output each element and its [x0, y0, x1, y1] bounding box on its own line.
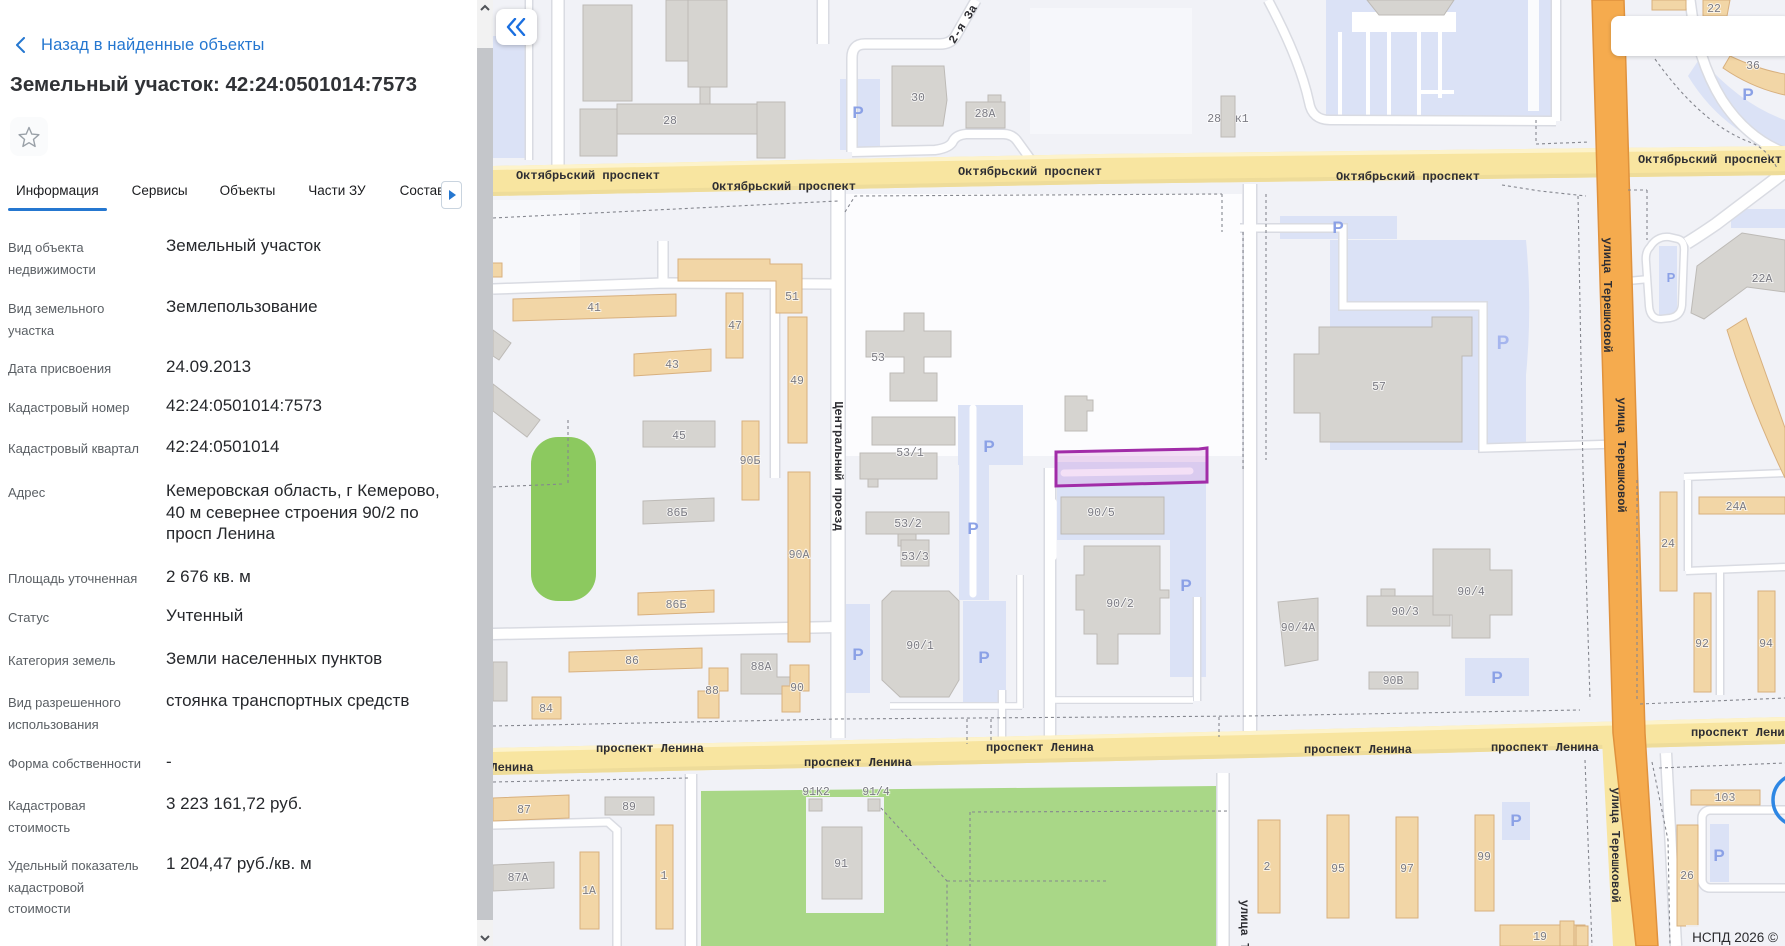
- svg-text:97: 97: [1400, 863, 1414, 876]
- svg-text:1: 1: [661, 870, 668, 883]
- svg-text:P: P: [1510, 811, 1521, 830]
- svg-text:28: 28: [663, 115, 677, 128]
- svg-text:103: 103: [1715, 792, 1736, 805]
- svg-text:Центральный проезд: Центральный проезд: [831, 401, 845, 531]
- svg-text:53: 53: [871, 352, 885, 365]
- svg-text:86: 86: [625, 655, 639, 668]
- svg-text:88: 88: [705, 685, 719, 698]
- svg-text:28А: 28А: [975, 108, 996, 121]
- svg-text:47: 47: [728, 320, 742, 333]
- svg-text:26: 26: [1680, 870, 1694, 883]
- svg-text:P: P: [1491, 668, 1502, 687]
- svg-text:90Б: 90Б: [740, 455, 761, 468]
- svg-text:проспект Ленина: проспект Ленина: [1691, 726, 1785, 740]
- svg-text:90В: 90В: [1383, 675, 1404, 688]
- svg-text:90: 90: [790, 682, 804, 695]
- svg-text:Октябрьский проспект: Октябрьский проспект: [1336, 169, 1480, 184]
- svg-text:проспект Ленина: проспект Ленина: [1304, 743, 1412, 757]
- svg-text:P: P: [1497, 333, 1510, 354]
- svg-text:24А: 24А: [1726, 501, 1747, 514]
- svg-text:57: 57: [1372, 381, 1386, 394]
- svg-text:87А: 87А: [508, 872, 529, 885]
- svg-text:P: P: [983, 437, 994, 456]
- svg-text:49: 49: [790, 375, 804, 388]
- svg-text:51: 51: [785, 291, 799, 304]
- svg-text:P: P: [967, 519, 978, 538]
- svg-text:1А: 1А: [582, 885, 596, 898]
- svg-text:24: 24: [1661, 538, 1675, 551]
- svg-text:90/4А: 90/4А: [1281, 622, 1316, 635]
- svg-text:90/2: 90/2: [1106, 598, 1134, 611]
- svg-text:проспект Ленина: проспект Ленина: [1491, 741, 1599, 755]
- svg-text:45: 45: [672, 430, 686, 443]
- svg-text:P: P: [978, 648, 989, 667]
- svg-text:P: P: [1332, 218, 1343, 237]
- svg-text:проспект Ленина: проспект Ленина: [986, 741, 1094, 755]
- svg-text:90/4: 90/4: [1457, 586, 1485, 599]
- svg-text:Октябрьский проспект: Октябрьский проспект: [516, 168, 660, 183]
- svg-text:53/2: 53/2: [894, 518, 922, 531]
- svg-text:22: 22: [1707, 3, 1721, 16]
- svg-text:НСПД 2026 ©: НСПД 2026 ©: [1692, 930, 1778, 945]
- svg-text:проспект Ленина: проспект Ленина: [804, 756, 912, 770]
- svg-text:95: 95: [1331, 863, 1345, 876]
- svg-text:P: P: [852, 103, 863, 122]
- svg-text:90/3: 90/3: [1391, 606, 1419, 619]
- svg-text:улица Т: улица Т: [1237, 900, 1251, 946]
- svg-text:19: 19: [1533, 931, 1547, 944]
- svg-text:90/1: 90/1: [906, 640, 934, 653]
- svg-text:88А: 88А: [751, 661, 772, 674]
- svg-text:99: 99: [1477, 851, 1491, 864]
- svg-text:30: 30: [911, 92, 925, 105]
- svg-text:86Б: 86Б: [667, 507, 688, 520]
- svg-text:84: 84: [539, 703, 553, 716]
- svg-text:90/5: 90/5: [1087, 507, 1115, 520]
- svg-text:92: 92: [1695, 638, 1709, 651]
- svg-text:36: 36: [1746, 60, 1760, 73]
- svg-text:87: 87: [517, 804, 531, 817]
- svg-text:Ленина: Ленина: [493, 761, 534, 775]
- svg-text:41: 41: [587, 302, 601, 315]
- svg-text:2: 2: [1264, 861, 1271, 874]
- svg-text:91К2: 91К2: [802, 786, 830, 799]
- svg-text:улица Терешковой: улица Терешковой: [1600, 237, 1614, 352]
- svg-text:проспект Ленина: проспект Ленина: [596, 742, 704, 756]
- svg-text:P: P: [1667, 270, 1676, 285]
- svg-text:P: P: [1742, 85, 1753, 104]
- svg-text:43: 43: [665, 359, 679, 372]
- svg-text:90А: 90А: [789, 549, 810, 562]
- svg-text:91/4: 91/4: [862, 786, 890, 799]
- svg-text:Октябрьский проспект: Октябрьский проспект: [1638, 152, 1782, 167]
- svg-text:улица Терешковой: улица Терешковой: [1614, 397, 1628, 512]
- svg-text:53/1: 53/1: [896, 447, 924, 460]
- svg-text:улица Терешковой: улица Терешковой: [1608, 787, 1622, 902]
- svg-text:Октябрьский проспект: Октябрьский проспект: [712, 179, 856, 194]
- svg-text:91: 91: [834, 858, 848, 871]
- svg-text:89: 89: [622, 801, 636, 814]
- svg-text:53/3: 53/3: [901, 551, 929, 564]
- svg-text:86Б: 86Б: [666, 599, 687, 612]
- svg-text:P: P: [852, 645, 863, 664]
- svg-text:Октябрьский проспект: Октябрьский проспект: [958, 164, 1102, 179]
- svg-text:P: P: [1713, 846, 1724, 865]
- svg-text:94: 94: [1759, 638, 1773, 651]
- svg-text:22А: 22А: [1752, 273, 1773, 286]
- svg-text:P: P: [1180, 576, 1191, 595]
